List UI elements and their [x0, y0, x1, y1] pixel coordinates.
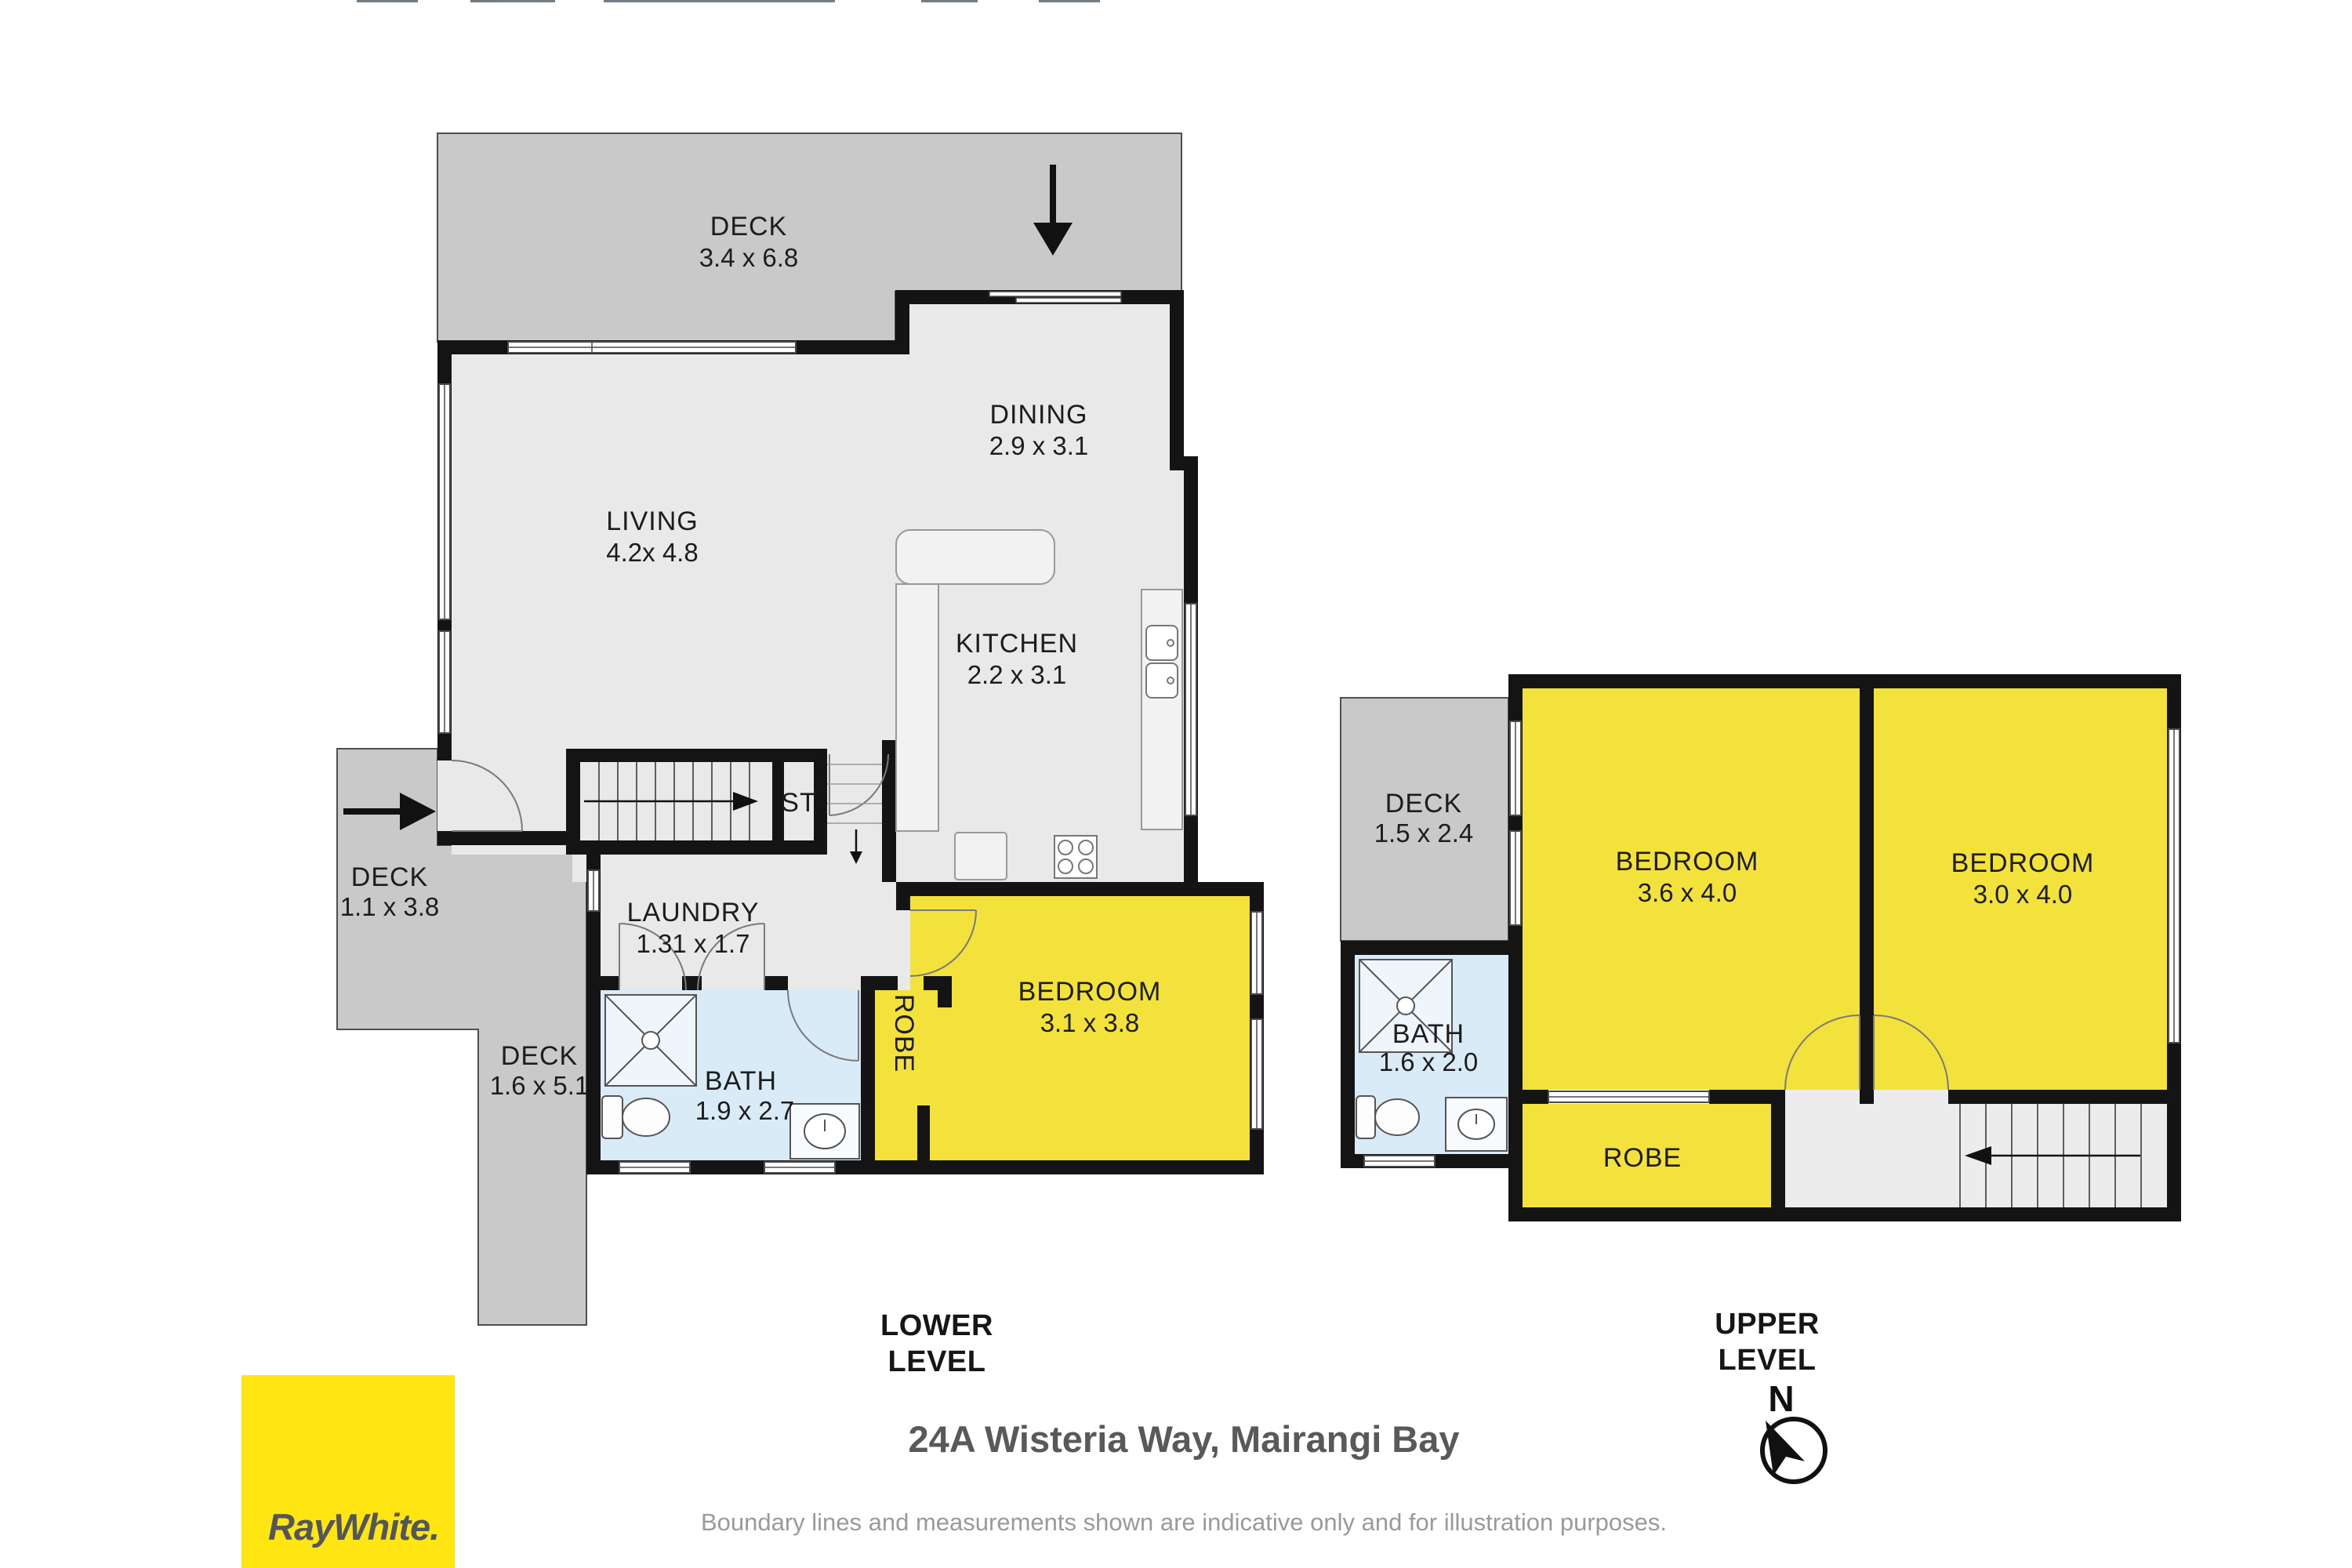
fridge — [955, 833, 1007, 880]
floorplan-page: DECK 3.4 x 6.8 DINING 2.9 x 3.1 LIVING 4… — [0, 0, 2352, 1568]
laundry-dims: 1.31 x 1.7 — [637, 929, 750, 958]
dining-label: DINING — [990, 400, 1088, 430]
shower — [605, 995, 696, 1086]
robe-label: ROBE — [889, 994, 919, 1073]
deck-bottom-dims: 1.6 x 5.1 — [490, 1071, 590, 1100]
deck-top-label: DECK — [710, 212, 787, 241]
deck-left-dims: 1.1 x 3.8 — [340, 892, 440, 921]
kitchen-peninsula-counter — [896, 530, 1054, 584]
lower-level-line2: LEVEL — [819, 1344, 1054, 1380]
deck-top-dims: 3.4 x 6.8 — [699, 243, 799, 272]
bedroom-label: BEDROOM — [1018, 977, 1162, 1007]
raywhite-wordmark: RayWhite. — [268, 1505, 439, 1548]
upper-bedroom1-label: BEDROOM — [1616, 847, 1759, 877]
upper-bedroom2-label: BEDROOM — [1951, 848, 2095, 878]
property-address-title: 24A Wisteria Way, Mairangi Bay — [400, 1417, 1968, 1461]
raywhite-logo: RayWhite. — [241, 1375, 455, 1568]
upper-bedroom2-dims: 3.0 x 4.0 — [1973, 880, 2073, 909]
upper-deck-label: DECK — [1385, 789, 1462, 818]
upper-bath-dims: 1.6 x 2.0 — [1379, 1047, 1479, 1076]
disclaimer-text: Boundary lines and measurements shown ar… — [400, 1508, 1968, 1537]
upper-level-line2: LEVEL — [1650, 1342, 1885, 1378]
lower-level-caption: LOWER LEVEL — [819, 1308, 1054, 1380]
upper-bedroom1-dims: 3.6 x 4.0 — [1638, 878, 1737, 907]
upper-vanity — [1446, 1098, 1507, 1151]
upper-robe-label: ROBE — [1603, 1143, 1682, 1173]
cooktop — [1054, 836, 1097, 878]
living-dims: 4.2x 4.8 — [606, 538, 698, 567]
living-label: LIVING — [606, 506, 698, 536]
vanity — [790, 1104, 859, 1159]
deck-left-label: DECK — [351, 862, 428, 892]
bedroom-dims: 3.1 x 3.8 — [1040, 1008, 1140, 1037]
upper-level-plan: DECK 1.5 x 2.4 BEDROOM 3.6 x 4.0 BEDROOM… — [1341, 674, 2181, 1221]
bath-label: BATH — [705, 1066, 777, 1096]
upper-landing-stairs-area — [1785, 1090, 2167, 1207]
storage-label: ST — [781, 788, 816, 818]
upper-bath-label: BATH — [1392, 1019, 1465, 1049]
kitchen-dims: 2.2 x 3.1 — [967, 660, 1067, 689]
bath-dims: 1.9 x 2.7 — [695, 1096, 795, 1125]
deck-bottom-label: DECK — [501, 1041, 578, 1071]
kitchen-counter-column — [896, 584, 938, 831]
dining-dims: 2.9 x 3.1 — [989, 431, 1089, 460]
upper-level-caption: UPPER LEVEL — [1650, 1306, 1885, 1378]
north-label: N — [1768, 1378, 1794, 1419]
kitchen-label: KITCHEN — [956, 629, 1078, 659]
lower-level-plan: DECK 3.4 x 6.8 DINING 2.9 x 3.1 LIVING 4… — [337, 133, 1264, 1325]
toilet — [602, 1096, 670, 1138]
floorplan-drawing: DECK 3.4 x 6.8 DINING 2.9 x 3.1 LIVING 4… — [0, 0, 2352, 1568]
cropped-artifact — [357, 0, 1100, 2]
upper-level-line1: UPPER — [1650, 1306, 1885, 1342]
laundry-label: LAUNDRY — [627, 898, 760, 927]
lower-level-line1: LOWER — [819, 1308, 1054, 1344]
upper-deck-dims: 1.5 x 2.4 — [1374, 818, 1474, 848]
upper-toilet — [1356, 1096, 1419, 1138]
